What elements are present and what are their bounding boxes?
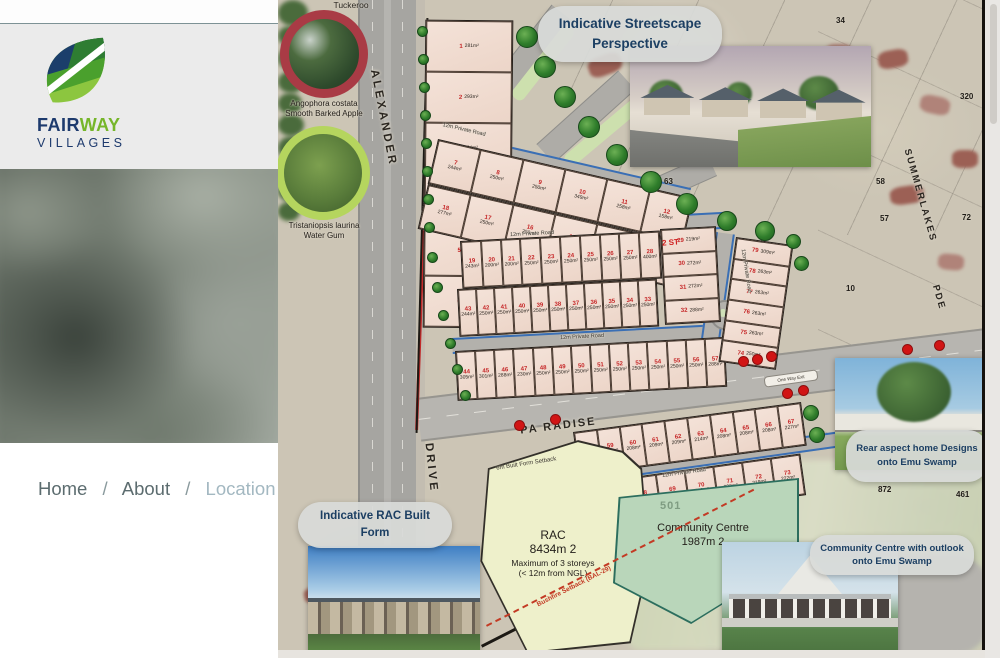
cc-name: Community Centre xyxy=(643,522,763,536)
marker-dot xyxy=(902,344,913,355)
parcel-501-label: 501 xyxy=(660,500,681,512)
lot-area: 263m² xyxy=(757,270,772,277)
lot-area: 250m² xyxy=(641,303,655,309)
lot-number: 75 xyxy=(740,330,747,337)
lot: 56250m² xyxy=(685,339,707,388)
parcel-number: 72 xyxy=(962,213,971,222)
nav-separator: / xyxy=(103,478,108,499)
parcel-number: 320 xyxy=(960,92,973,101)
nav-separator: / xyxy=(185,478,190,499)
rac-area: 8434m 2 xyxy=(483,542,623,556)
tree-icon xyxy=(554,86,576,108)
legend-common: Smooth Barked Apple xyxy=(278,109,384,119)
lot-number: 32 xyxy=(681,308,688,314)
tree-icon xyxy=(421,138,432,149)
lot-area: 250m² xyxy=(551,308,565,314)
marker-dot xyxy=(550,414,561,425)
lot-number: 31 xyxy=(680,284,687,290)
lot: 31272m² xyxy=(664,274,719,300)
wordmark-fair: FAIR xyxy=(37,115,80,135)
lot: 21200m² xyxy=(501,239,523,286)
tree-icon xyxy=(418,54,429,65)
tree-icon xyxy=(809,427,825,443)
tree-icon xyxy=(717,211,737,231)
lot: 67227m² xyxy=(778,403,806,448)
lot-area: 250m² xyxy=(569,307,583,313)
house-roof xyxy=(918,93,951,117)
lot-area: 277m² xyxy=(437,210,452,219)
callout-streetscape: Indicative Streetscape Perspective xyxy=(538,6,722,62)
lot-area: 200m² xyxy=(505,262,519,268)
callout-community-centre: Community Centre with outlook onto Emu S… xyxy=(810,535,974,575)
lot-area: 281m² xyxy=(465,44,479,50)
tree-icon xyxy=(419,82,430,93)
lot: 22250m² xyxy=(520,238,542,285)
parcel-number: 10 xyxy=(846,284,855,293)
lot-area: 309m² xyxy=(760,249,775,256)
lot-area: 250m² xyxy=(623,256,637,262)
lot-area: 250m² xyxy=(524,261,538,267)
lot: 36250m² xyxy=(584,282,604,329)
lot: 49250m² xyxy=(552,346,574,395)
marker-dot xyxy=(752,354,763,365)
lot-area: 250m² xyxy=(564,259,578,265)
lot-area: 301m² xyxy=(479,374,493,380)
lot: 50250m² xyxy=(571,345,593,394)
parcel-number: 63 xyxy=(664,177,673,186)
lot: 2293m² xyxy=(425,72,511,124)
tree-icon xyxy=(445,338,456,349)
lot-area: 250m² xyxy=(603,257,617,263)
lot-area: 250m² xyxy=(594,368,608,374)
tree-icon xyxy=(422,166,433,177)
tree-icon xyxy=(432,282,443,293)
tree-icon xyxy=(452,364,463,375)
legend-latin: Tristaniopsis laurina xyxy=(278,221,384,231)
lot-area: 250m² xyxy=(689,363,703,369)
lot-area: 263m² xyxy=(751,311,766,318)
nav-link-about[interactable]: About xyxy=(122,478,170,499)
callout-rear-aspect: Rear aspect home Designs onto Emu Swamp xyxy=(846,430,985,482)
lot-area: 250m² xyxy=(515,309,529,315)
render-house xyxy=(702,99,748,117)
lot-area: 349m² xyxy=(573,194,588,203)
lot-area: 250m² xyxy=(613,367,627,373)
lot-number: 2 xyxy=(459,94,462,100)
house-roof xyxy=(877,48,910,71)
tree-icon xyxy=(803,405,819,421)
lot-area: 250m² xyxy=(587,306,601,312)
house-roof xyxy=(937,253,964,271)
lot-area: 272m² xyxy=(688,284,702,290)
lot-area: 230m² xyxy=(517,372,531,378)
lot-area: 250m² xyxy=(479,311,493,317)
lot: 40250m² xyxy=(512,286,532,333)
masterplan-map-image: 1281m²2293m²3284m²4286m²5287m²6220m² 724… xyxy=(278,0,985,650)
lot-area: 208m² xyxy=(717,434,732,441)
rac-name: RAC xyxy=(483,528,623,542)
lot: 47230m² xyxy=(513,348,535,397)
lot-area: 208m² xyxy=(626,446,641,453)
lot: 19243m² xyxy=(461,241,483,288)
lot: 26250m² xyxy=(599,234,621,281)
lot: 37250m² xyxy=(566,283,586,330)
tree-icon xyxy=(786,234,801,249)
sidebar: FAIRWAY VILLAGES Home / About / Location xyxy=(0,0,278,658)
lot-area: 250m² xyxy=(632,366,646,372)
lot: 42250m² xyxy=(476,288,496,335)
lot-area: 209m² xyxy=(649,443,664,450)
lot-area: 288m² xyxy=(708,362,722,368)
render-house xyxy=(760,100,806,118)
legend-common: Water Gum xyxy=(278,231,384,241)
fairway-leaf-logo-icon[interactable] xyxy=(36,34,112,110)
lot-area: 244m² xyxy=(461,312,475,318)
tree-icon xyxy=(460,390,471,401)
tree-icon xyxy=(640,171,662,193)
lot: 28400m² xyxy=(639,232,661,279)
house-roof xyxy=(952,150,978,168)
lot-area: 227m² xyxy=(785,425,800,432)
lot-area: 250m² xyxy=(479,220,494,229)
render-house xyxy=(644,97,690,115)
parcel-number: 34 xyxy=(836,16,845,25)
lot: 34250m² xyxy=(620,281,640,328)
tree-icon xyxy=(794,256,809,271)
lot: 55250m² xyxy=(666,340,688,389)
sidebar-blurred-photo xyxy=(0,169,278,443)
lot: 43244m² xyxy=(458,289,478,336)
lot-area: 250m² xyxy=(623,304,637,310)
legend-latin: Angophora costata xyxy=(278,99,384,109)
marker-dot xyxy=(782,388,793,399)
legend-caption-angophora: Angophora costata Smooth Barked Apple xyxy=(278,99,384,120)
lot-area: 214m² xyxy=(694,437,709,444)
lot: 38250m² xyxy=(548,284,568,331)
marker-dot xyxy=(934,340,945,351)
lot: 41250m² xyxy=(494,287,514,334)
lot-area: 272m² xyxy=(687,260,701,266)
streetscape-render-image xyxy=(630,46,871,167)
street-label-pde: PDE xyxy=(930,284,948,312)
rac-render-image xyxy=(308,546,480,650)
lot-number: 1 xyxy=(459,43,462,49)
page: FAIRWAY VILLAGES Home / About / Location xyxy=(0,0,1000,658)
parcel-number: 58 xyxy=(876,177,885,186)
lot: 30272m² xyxy=(662,251,717,277)
lot-number: 79 xyxy=(751,248,758,255)
lot: 25250m² xyxy=(580,235,602,282)
legend-caption-tristaniopsis: Tristaniopsis laurina Water Gum xyxy=(278,221,384,242)
tree-icon xyxy=(423,194,434,205)
street-label-drive: DRIVE xyxy=(422,442,439,493)
lot: 35250m² xyxy=(602,281,622,328)
lot-area: 158m² xyxy=(658,214,673,223)
lot-area: 263m² xyxy=(754,290,769,297)
lot-area: 250m² xyxy=(489,175,504,184)
tree-icon xyxy=(438,310,449,321)
tree-icon xyxy=(606,144,628,166)
scrollbar[interactable] xyxy=(990,4,997,124)
page-bottom-strip xyxy=(278,650,985,658)
parcel-number: 461 xyxy=(956,490,969,499)
render-lawn xyxy=(738,116,871,167)
tree-icon xyxy=(420,110,431,121)
marker-dot xyxy=(798,385,809,396)
lot: 46288m² xyxy=(494,349,516,398)
lot-number: 76 xyxy=(743,309,750,316)
lot-area: 219m² xyxy=(686,237,700,243)
lot-area: 293m² xyxy=(464,95,478,101)
lot-area: 244m² xyxy=(447,165,462,174)
nav-link-home[interactable]: Home xyxy=(38,478,87,499)
lot-area: 250m² xyxy=(584,258,598,264)
wordmark-way: WAY xyxy=(80,115,121,135)
lot-area: 250m² xyxy=(536,371,550,377)
lot-area: 263m² xyxy=(749,331,764,338)
tree-icon xyxy=(424,222,435,233)
marker-dot xyxy=(738,356,749,367)
sidebar-blurred-photo-inner xyxy=(0,169,278,443)
lot: 53250m² xyxy=(628,342,650,391)
lot-area: 250m² xyxy=(533,309,547,315)
lot-area: 250m² xyxy=(574,369,588,375)
legend-title-tuckeroo: Tuckeroo xyxy=(306,0,396,10)
lot: 33250m² xyxy=(638,280,658,327)
lot-area: 288m² xyxy=(498,373,512,379)
lot-area: 250m² xyxy=(544,260,558,266)
lot-area: 250m² xyxy=(497,310,511,316)
parcel-number: 57 xyxy=(880,214,889,223)
lot-area: 250m² xyxy=(605,305,619,311)
lot: 48250m² xyxy=(533,347,555,396)
two-storey-label: 2 ST xyxy=(662,237,679,247)
tree-icon xyxy=(755,221,775,241)
lot-area: 250m² xyxy=(531,185,546,194)
lot: 24250m² xyxy=(560,236,582,283)
wordmark-villages: VILLAGES xyxy=(37,137,125,151)
lot: 54250m² xyxy=(647,341,669,390)
lot: 39250m² xyxy=(530,285,550,332)
logo-panel: FAIRWAY VILLAGES xyxy=(0,24,278,169)
lot-area: 250m² xyxy=(651,365,665,371)
lot: 20200m² xyxy=(481,240,503,287)
main-nav: Home / About / Location xyxy=(38,478,276,500)
legend-tree-photo-tristaniopsis xyxy=(278,126,370,220)
lot-area: 288m² xyxy=(689,307,703,313)
lot-area: 208m² xyxy=(762,428,777,435)
marker-dot xyxy=(766,351,777,362)
tree-icon xyxy=(427,252,438,263)
lot-area: 200m² xyxy=(485,263,499,269)
render-building xyxy=(308,598,480,634)
lot-area: 250m² xyxy=(555,370,569,376)
tree-icon xyxy=(578,116,600,138)
lot-area: 305m² xyxy=(460,375,474,381)
lot: 1281m² xyxy=(426,21,512,73)
lot-area: 250m² xyxy=(670,364,684,370)
lot: 51250m² xyxy=(590,344,612,393)
lot: 52250m² xyxy=(609,343,631,392)
lot: 32288m² xyxy=(665,298,720,324)
photo-deck xyxy=(722,618,898,627)
lot: 45301m² xyxy=(475,350,497,399)
header-strip xyxy=(0,0,278,24)
tree-icon xyxy=(676,193,698,215)
lot-area: 400m² xyxy=(643,255,657,261)
lot: 27250m² xyxy=(619,233,641,280)
lot-number: 30 xyxy=(678,261,685,267)
nav-link-location[interactable]: Location xyxy=(206,478,276,499)
wordmark: FAIRWAY VILLAGES xyxy=(37,116,125,151)
lot-area: 243m² xyxy=(465,264,479,270)
tree-icon xyxy=(516,26,538,48)
legend-tree-photo-angophora xyxy=(280,10,368,98)
lot-area: 208m² xyxy=(739,431,754,438)
parcel-number: 872 xyxy=(878,485,891,494)
lot-area: 258m² xyxy=(616,204,631,213)
tree-icon xyxy=(417,26,428,37)
marker-dot xyxy=(514,420,525,431)
lot: 23250m² xyxy=(540,237,562,284)
callout-rac-built-form: Indicative RAC Built Form xyxy=(298,502,452,548)
lot-area: 209m² xyxy=(672,440,687,447)
